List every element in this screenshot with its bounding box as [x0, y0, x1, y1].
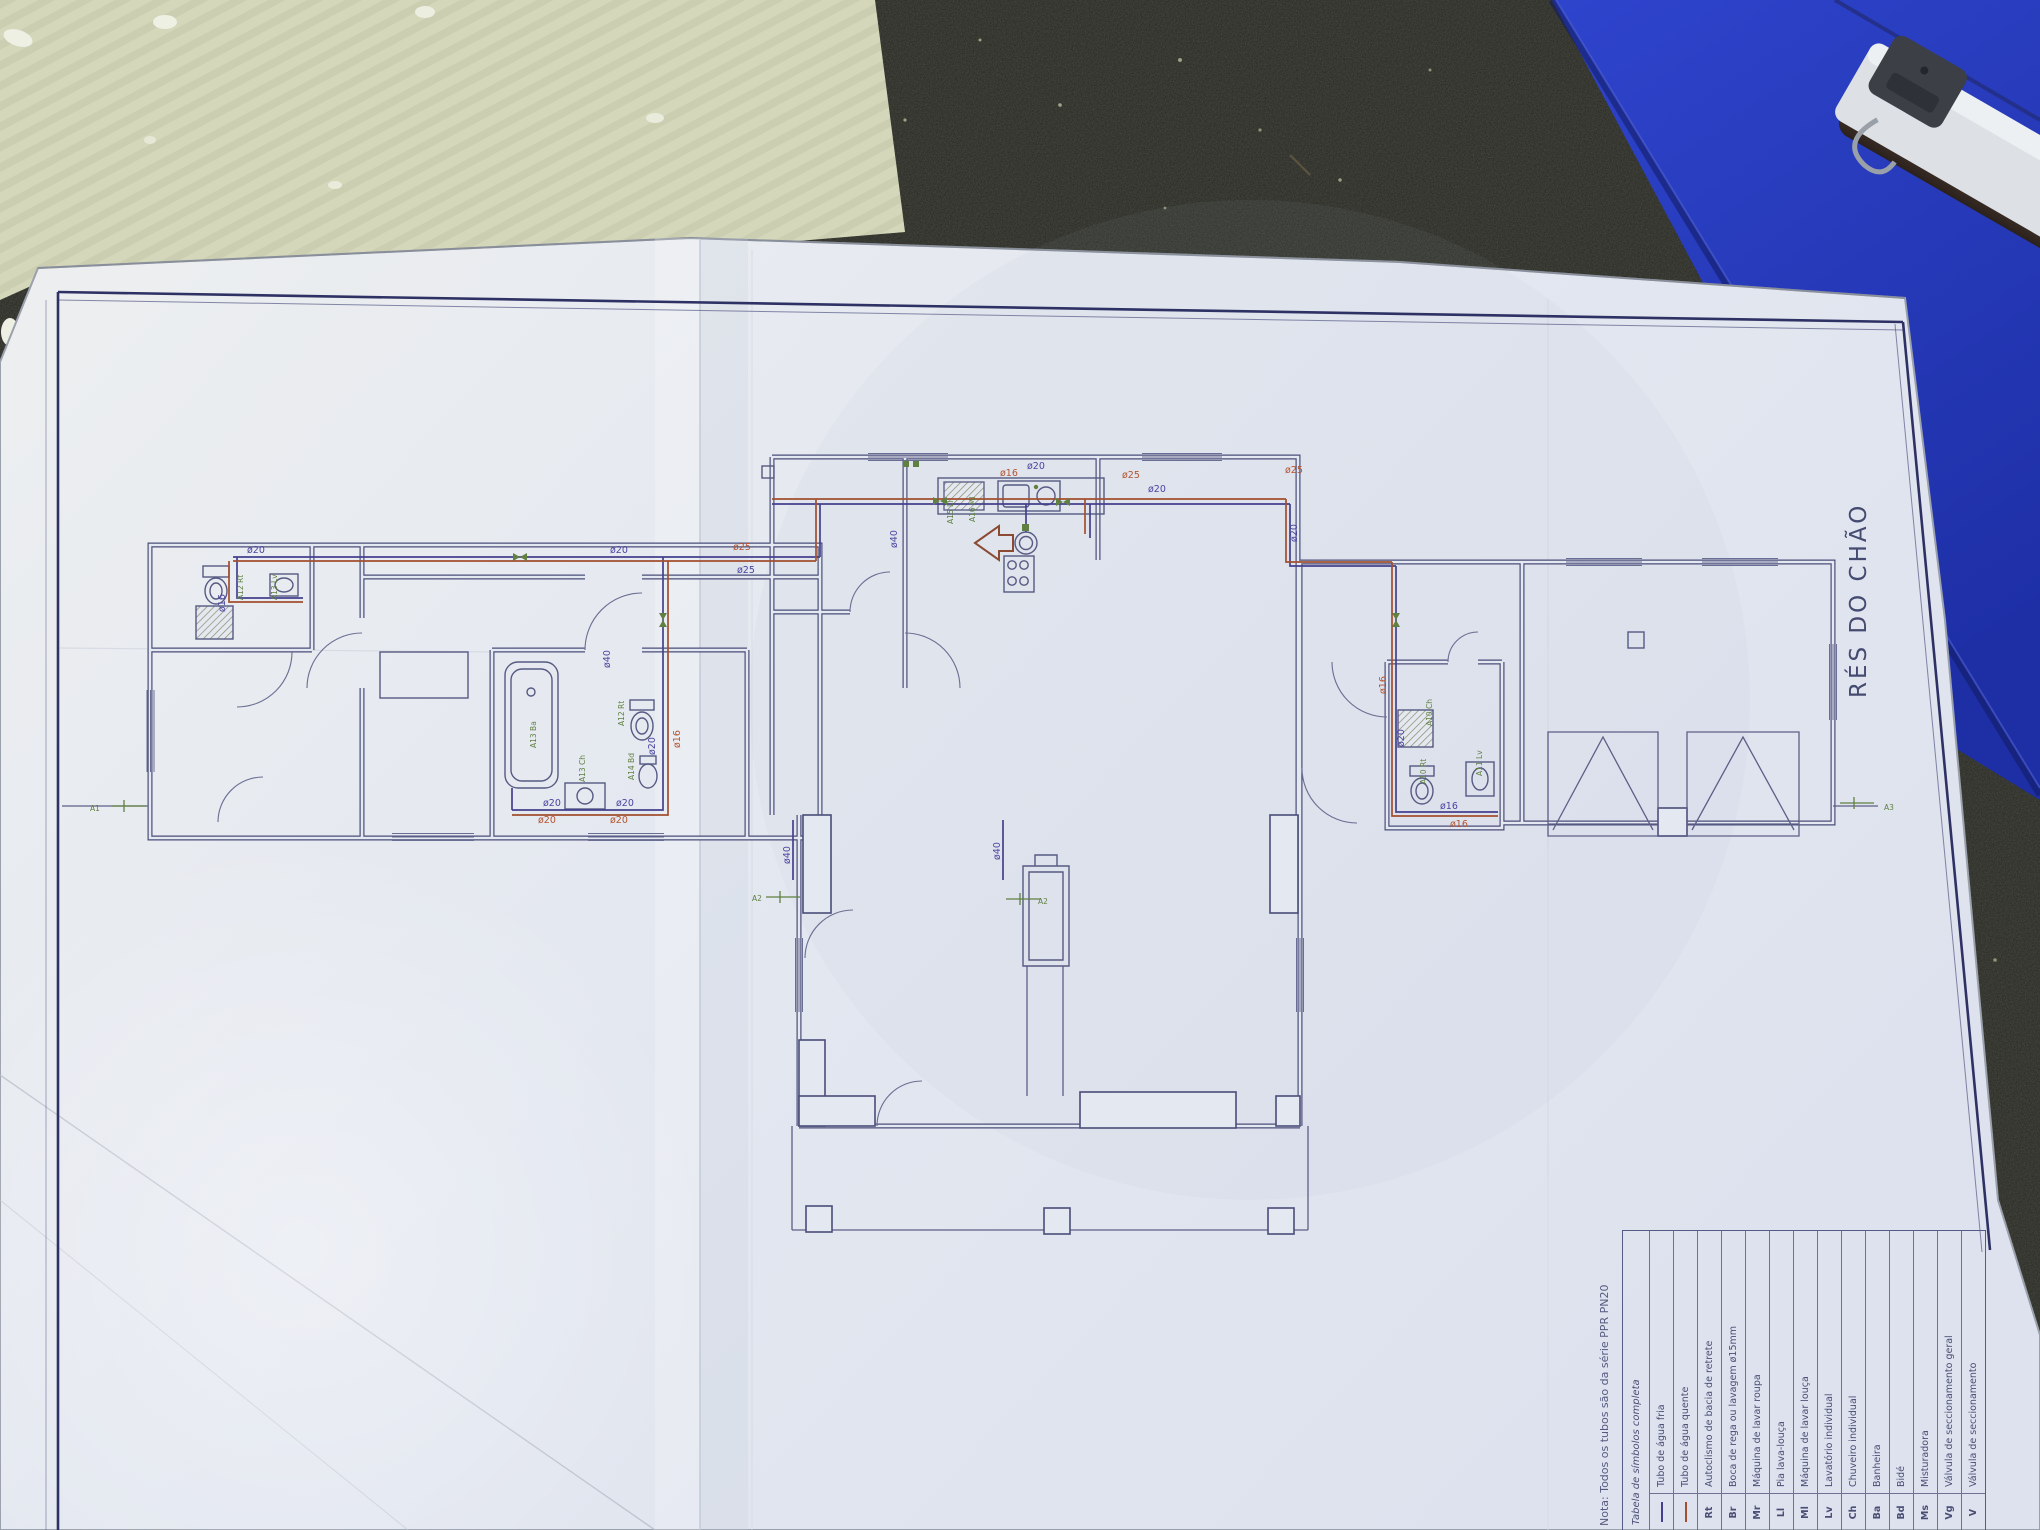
legend-symbol: Vg	[1938, 1493, 1961, 1530]
plan-label: A11 Lv	[1475, 750, 1484, 776]
legend-label: Tubo de água fria	[1656, 1231, 1667, 1493]
plan-label: A2	[1038, 897, 1048, 906]
plan-label: A14 Bd	[627, 753, 636, 780]
plan-label: ø40	[889, 530, 900, 548]
plan-label: ø40	[782, 846, 793, 864]
legend-row: LlPia lava-louça	[1769, 1231, 1793, 1530]
plan-label: ø20	[543, 798, 561, 809]
legend-symbol: Ba	[1866, 1493, 1889, 1530]
plan-label: ø25	[1122, 470, 1140, 481]
legend-symbol: Ll	[1770, 1493, 1793, 1530]
plan-label: ø25	[1285, 465, 1303, 476]
legend-label: Tubo de água quente	[1680, 1231, 1691, 1493]
legend-symbol	[1650, 1493, 1673, 1530]
legend-symbol: Mr	[1746, 1493, 1769, 1530]
plan-label: ø16	[217, 594, 228, 612]
legend-label: Banheira	[1872, 1231, 1883, 1493]
photo-scene: ø20ø25ø25ø20ø16A12 RtA13 Lvø20ø20ø20ø20ø…	[0, 0, 2040, 1530]
plan-label: ø20	[1148, 484, 1166, 495]
legend-label: Válvula de seccionamento geral	[1944, 1231, 1955, 1493]
plan-label: ø20	[616, 798, 634, 809]
plan-label: ø20	[538, 815, 556, 826]
sheet-note: Nota: Todos os tubos são da série PPR PN…	[1598, 1156, 1611, 1526]
plan-label: A2	[752, 894, 762, 903]
plan-label: A10 Rt	[1419, 759, 1428, 784]
legend-title: Tabela de símbolos completa	[1623, 1231, 1649, 1530]
legend-row: ChChuveiro individual	[1841, 1231, 1865, 1530]
legend-symbol: Bd	[1890, 1493, 1913, 1530]
legend-label: Boca de rega ou lavagem ø15mm	[1728, 1231, 1739, 1493]
legend-row: VVálvula de seccionamento	[1961, 1231, 1985, 1530]
plan-label: A1	[90, 804, 100, 813]
legend-row: LvLavatório individual	[1817, 1231, 1841, 1530]
legend-row: MrMáquina de lavar roupa	[1745, 1231, 1769, 1530]
legend-row: Tubo de água quente	[1673, 1231, 1697, 1530]
legend-row: BaBanheira	[1865, 1231, 1889, 1530]
legend-symbol: Ch	[1842, 1493, 1865, 1530]
legend-symbol: Ml	[1794, 1493, 1817, 1530]
legend-symbol: Br	[1722, 1493, 1745, 1530]
plan-label: ø25	[733, 542, 751, 553]
legend-row: Tubo de água fria	[1649, 1231, 1673, 1530]
plan-label: ø20	[647, 737, 658, 755]
plan-label: ø20	[1396, 729, 1407, 747]
legend-label: Misturadora	[1920, 1231, 1931, 1493]
legend-label: Autoclismo de bacia de retrete	[1704, 1231, 1715, 1493]
legend-symbol: Ms	[1914, 1493, 1937, 1530]
legend-label: Válvula de seccionamento	[1968, 1231, 1979, 1493]
plan-label: ø16	[1440, 801, 1458, 812]
plan-label: A12 Rt	[617, 701, 626, 726]
plan-label: ø16	[1450, 819, 1468, 830]
legend-label: Bidé	[1896, 1231, 1907, 1493]
plan-label: A12 Rt	[236, 575, 245, 600]
sheet-title: RÉS DO CHÃO	[1846, 518, 1872, 698]
legend-label: Chuveiro individual	[1848, 1231, 1859, 1493]
plan-label: ø16	[1000, 468, 1018, 479]
legend-label: Pia lava-louça	[1776, 1231, 1787, 1493]
legend-table: Tabela de símbolos completa Tubo de água…	[1622, 1230, 1986, 1530]
legend-row: MlMáquina de lavar louça	[1793, 1231, 1817, 1530]
plan-label: A13 Ba	[529, 721, 538, 748]
legend-symbol: Lv	[1818, 1493, 1841, 1530]
legend-label: Máquina de lavar roupa	[1752, 1231, 1763, 1493]
plan-label: ø16	[672, 730, 683, 748]
legend-symbol	[1674, 1493, 1697, 1530]
plan-label: A16 Ml	[968, 496, 977, 522]
legend-row: RtAutoclismo de bacia de retrete	[1697, 1231, 1721, 1530]
plan-label: ø20	[610, 545, 628, 556]
plan-label: ø16	[1378, 676, 1389, 694]
legend-symbol: Rt	[1698, 1493, 1721, 1530]
plan-label: ø25	[737, 565, 755, 576]
plan-label: A13 Lv	[270, 574, 279, 600]
plan-label: ø20	[1027, 461, 1045, 472]
plan-label: ø40	[602, 650, 613, 668]
plan-label: A3	[1884, 803, 1894, 812]
legend-label: Máquina de lavar louça	[1800, 1231, 1811, 1493]
plan-label: ø40	[992, 842, 1003, 860]
plan-label: A10 Ch	[1425, 699, 1434, 726]
legend-row: VgVálvula de seccionamento geral	[1937, 1231, 1961, 1530]
plan-label: A13 Ch	[578, 755, 587, 782]
legend-row: BrBoca de rega ou lavagem ø15mm	[1721, 1231, 1745, 1530]
legend-row: MsMisturadora	[1913, 1231, 1937, 1530]
plan-label: ø20	[1289, 524, 1300, 542]
plan-label: A15 Ll	[946, 501, 955, 524]
legend-symbol: V	[1962, 1493, 1985, 1530]
plan-label: ø20	[610, 815, 628, 826]
legend-row: BdBidé	[1889, 1231, 1913, 1530]
plan-label: ø20	[247, 545, 265, 556]
legend-label: Lavatório individual	[1824, 1231, 1835, 1493]
